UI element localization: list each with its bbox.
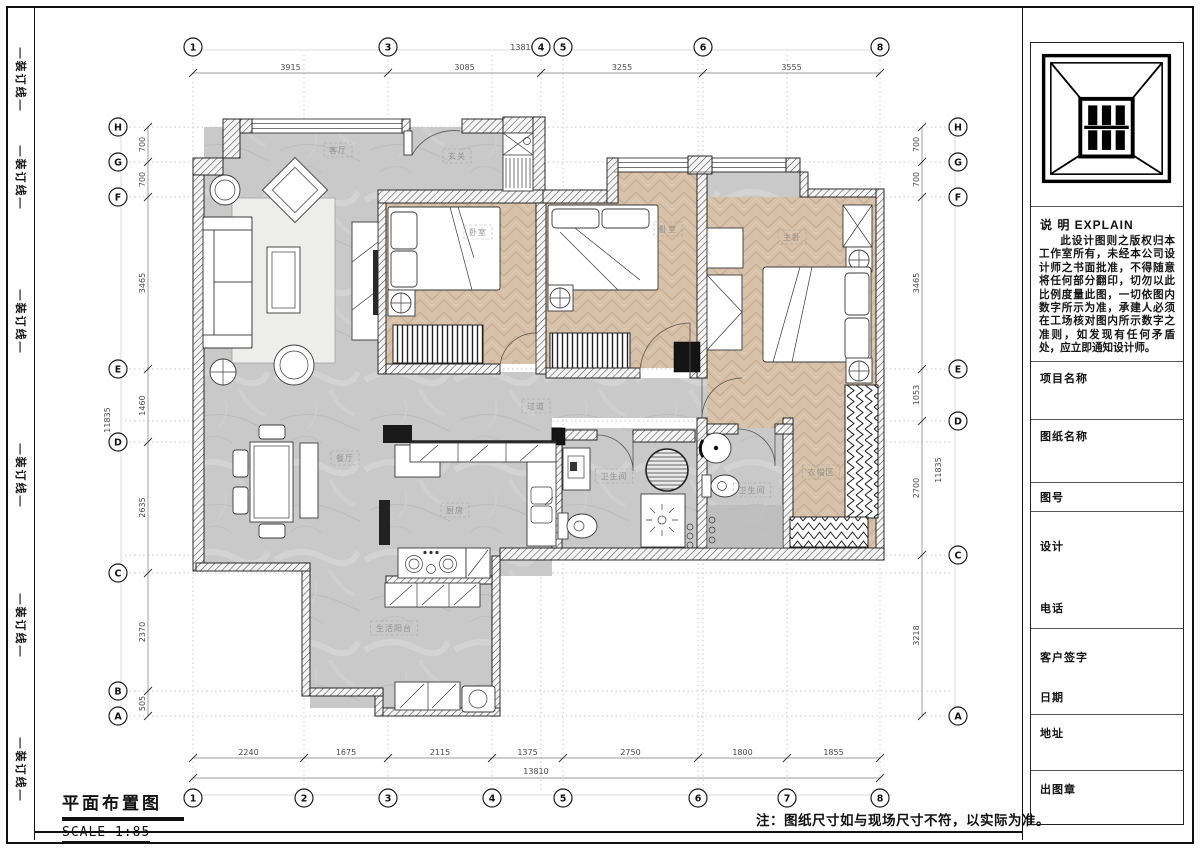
- svg-text:C: C: [115, 568, 122, 579]
- dimension-value: 2700: [912, 478, 921, 498]
- title-underline: [62, 817, 184, 821]
- svg-text:3: 3: [385, 42, 392, 53]
- room-label: 衣帽区: [802, 465, 840, 479]
- svg-text:G: G: [954, 157, 962, 168]
- grid-bubble-7: 7: [778, 789, 796, 807]
- svg-text:F: F: [115, 192, 122, 203]
- explain-title: 说 明 EXPLAIN: [1040, 216, 1134, 233]
- dimension-value: 3915: [280, 63, 300, 72]
- svg-text:6: 6: [700, 42, 707, 53]
- wardrobe: [707, 275, 742, 350]
- laundry-basket: [646, 449, 688, 491]
- grid-bubble-H: H: [949, 118, 967, 136]
- svg-text:卫生间: 卫生间: [601, 471, 628, 481]
- pillow: [391, 251, 417, 287]
- field-stamp: 出图章: [1031, 770, 1183, 824]
- grid-bubble-4: 4: [532, 38, 550, 56]
- dimension-value: 3465: [912, 273, 921, 293]
- svg-text:F: F: [955, 192, 962, 203]
- fridge: [383, 425, 412, 443]
- sheet-note: 注：图纸尺寸如与现场尺寸不符，以实际为准。: [756, 809, 1050, 829]
- svg-text:主卧: 主卧: [783, 232, 801, 242]
- svg-text:1: 1: [190, 42, 197, 53]
- dimension-value: 3255: [612, 63, 632, 72]
- field-project-name: 项目名称: [1031, 361, 1183, 419]
- pillow: [602, 209, 649, 228]
- grid-bubble-E: E: [109, 360, 127, 378]
- explain-section: 说 明 EXPLAIN 此设计图则之版权归本工作室所有，未经本公司设计师之书面批…: [1031, 206, 1183, 361]
- dimension-value: 1855: [823, 748, 843, 757]
- svg-text:卧室: 卧室: [659, 224, 677, 234]
- grid-bubble-F: F: [109, 188, 127, 206]
- svg-text:厨房: 厨房: [446, 505, 464, 515]
- dimension-value: 2240: [238, 748, 258, 757]
- svg-text:5: 5: [560, 42, 567, 53]
- svg-text:7: 7: [784, 793, 791, 804]
- field-drawing-name: 图纸名称: [1031, 419, 1183, 482]
- view-title: 平面布置图: [62, 789, 184, 814]
- dimension-value: 3218: [912, 625, 921, 645]
- svg-text:H: H: [114, 122, 122, 133]
- shower-zone: [707, 505, 783, 548]
- svg-text:4: 4: [538, 42, 545, 53]
- room-label: 卫生间: [733, 483, 771, 497]
- pillow: [552, 209, 599, 228]
- svg-text:C: C: [955, 550, 962, 561]
- grid-bubble-D: D: [109, 433, 127, 451]
- window-living-north: [252, 119, 402, 133]
- dimension-value: 2635: [138, 497, 147, 517]
- entry-closet: [503, 133, 533, 191]
- window-bay-right: [712, 158, 786, 172]
- grid-bubble-2: 2: [295, 789, 313, 807]
- svg-text:G: G: [114, 157, 122, 168]
- dimension-value: 1053: [912, 385, 921, 405]
- dimension-value: 2750: [620, 748, 640, 757]
- grid-bubble-G: G: [949, 153, 967, 171]
- svg-text:卧室: 卧室: [469, 227, 487, 237]
- toilet: [711, 475, 739, 497]
- svg-text:3: 3: [385, 793, 392, 804]
- room-label: 卫生间: [595, 469, 633, 483]
- dining-chair: [259, 425, 285, 439]
- svg-text:B: B: [114, 686, 121, 697]
- tall-cabinet: [379, 500, 390, 545]
- dimension-total: 11835: [103, 407, 112, 432]
- grid-bubble-6: 6: [689, 789, 707, 807]
- svg-text:8: 8: [877, 42, 884, 53]
- grid-bubble-C: C: [949, 546, 967, 564]
- grid-bubble-H: H: [109, 118, 127, 136]
- pillow: [391, 212, 417, 249]
- dimension-value: 1800: [732, 748, 752, 757]
- panel-separator-line: [1022, 8, 1023, 840]
- dimension-value: 700: [138, 172, 147, 187]
- dimension-value: 2370: [138, 622, 147, 642]
- desk: [707, 228, 743, 268]
- sofa: [203, 217, 252, 348]
- grid-bubble-1: 1: [184, 38, 202, 56]
- grid-bubble-3: 3: [379, 789, 397, 807]
- logo-section: [1031, 43, 1183, 206]
- window-bay-left: [618, 158, 688, 172]
- dimension-value: 700: [138, 137, 147, 152]
- svg-text:衣帽区: 衣帽区: [808, 467, 835, 477]
- side-table-round: [210, 175, 240, 205]
- tv-screen: [373, 250, 378, 315]
- svg-text:5: 5: [560, 793, 567, 804]
- grid-bubble-6: 6: [694, 38, 712, 56]
- dimension-value: 1375: [517, 748, 537, 757]
- grid-bubble-E: E: [949, 360, 967, 378]
- svg-text:卫生间: 卫生间: [739, 485, 766, 495]
- svg-text:A: A: [954, 711, 962, 722]
- grid-bubble-8: 8: [871, 38, 889, 56]
- tv-bench: [393, 325, 483, 363]
- field-drawing-no: 图号: [1031, 482, 1183, 511]
- grid-bubble-B: B: [109, 682, 127, 700]
- dimension-value: 3555: [781, 63, 801, 72]
- svg-text:8: 8: [877, 793, 884, 804]
- toilet-tank: [702, 475, 711, 497]
- floor-plan-drawing: 3915308532553555224016752115137527501800…: [0, 0, 1020, 849]
- dimension-value: 505: [138, 696, 147, 711]
- grid-bubble-5: 5: [554, 38, 572, 56]
- svg-text:E: E: [955, 364, 962, 375]
- pillow: [845, 273, 869, 315]
- balcony-cabinet: [395, 682, 460, 710]
- svg-text:1: 1: [190, 793, 197, 804]
- wardrobe-hangers: [790, 517, 868, 547]
- grid-bubble-A: A: [949, 707, 967, 725]
- floor-hallway: [546, 378, 707, 418]
- grid-bubble-G: G: [109, 153, 127, 171]
- dimension-value: 2115: [430, 748, 450, 757]
- svg-text:过道: 过道: [527, 401, 545, 411]
- dining-bench: [300, 443, 318, 518]
- svg-text:2: 2: [301, 793, 308, 804]
- svg-text:D: D: [114, 437, 122, 448]
- svg-text:客厅: 客厅: [329, 145, 347, 155]
- dimension-total: 11835: [934, 457, 943, 482]
- dining-chair: [233, 450, 248, 477]
- dimension-total: 13810: [523, 767, 548, 776]
- kitchen-counter: [410, 443, 556, 462]
- dimension-value: 3465: [138, 273, 147, 293]
- grid-bubble-D: D: [949, 412, 967, 430]
- entry-door-leaf: [404, 131, 412, 155]
- wardrobe-hangers: [845, 385, 878, 518]
- field-design-phone: 设计 电话: [1031, 511, 1183, 628]
- toilet: [567, 514, 597, 538]
- field-address: 地址: [1031, 714, 1183, 770]
- svg-text:6: 6: [695, 793, 702, 804]
- dimension-value: 700: [912, 137, 921, 152]
- room-label: 生活阳台: [371, 621, 418, 635]
- title-block-panel: 说 明 EXPLAIN 此设计图则之版权归本工作室所有，未经本公司设计师之书面批…: [1030, 42, 1184, 825]
- svg-text:D: D: [954, 416, 962, 427]
- grid-bubble-F: F: [949, 188, 967, 206]
- grid-bubble-C: C: [109, 564, 127, 582]
- dimension-value: 1675: [336, 748, 356, 757]
- explain-text: 此设计图则之版权归本工作室所有，未经本公司设计师之书面批准，不得随意将任何部分翻…: [1039, 235, 1175, 356]
- tv-bench: [550, 333, 630, 368]
- grid-bubble-8: 8: [871, 789, 889, 807]
- drawing-sheet: —装订线——装订线——装订线——装订线——装订线——装订线—: [0, 0, 1200, 849]
- dining-chair: [233, 487, 248, 514]
- shower-area: [641, 494, 685, 547]
- svg-text:生活阳台: 生活阳台: [376, 623, 412, 633]
- grid-bubble-1: 1: [184, 789, 202, 807]
- grid-bubble-A: A: [109, 707, 127, 725]
- svg-text:E: E: [115, 364, 122, 375]
- svg-text:H: H: [954, 122, 962, 133]
- dining-table: [250, 442, 293, 522]
- grid-bubble-4: 4: [483, 789, 501, 807]
- dimension-value: 3085: [454, 63, 474, 72]
- toilet-tank: [558, 513, 568, 539]
- pillow: [845, 318, 869, 359]
- company-logo: [1041, 53, 1172, 184]
- grid-bubble-5: 5: [554, 789, 572, 807]
- svg-text:玄关: 玄关: [448, 151, 466, 161]
- dimension-value: 1460: [138, 395, 147, 415]
- grid-bubble-3: 3: [379, 38, 397, 56]
- dining-chair: [259, 524, 285, 538]
- tv-unit-black: [674, 342, 700, 372]
- scale-label: SCALE 1:85: [62, 825, 150, 842]
- dimension-value: 700: [912, 172, 921, 187]
- field-signature-date: 客户签字 日期: [1031, 628, 1183, 714]
- svg-text:餐厅: 餐厅: [336, 454, 354, 463]
- svg-text:4: 4: [489, 793, 496, 804]
- view-title-block: 平面布置图 SCALE 1:85: [62, 789, 184, 842]
- svg-text:A: A: [114, 711, 122, 722]
